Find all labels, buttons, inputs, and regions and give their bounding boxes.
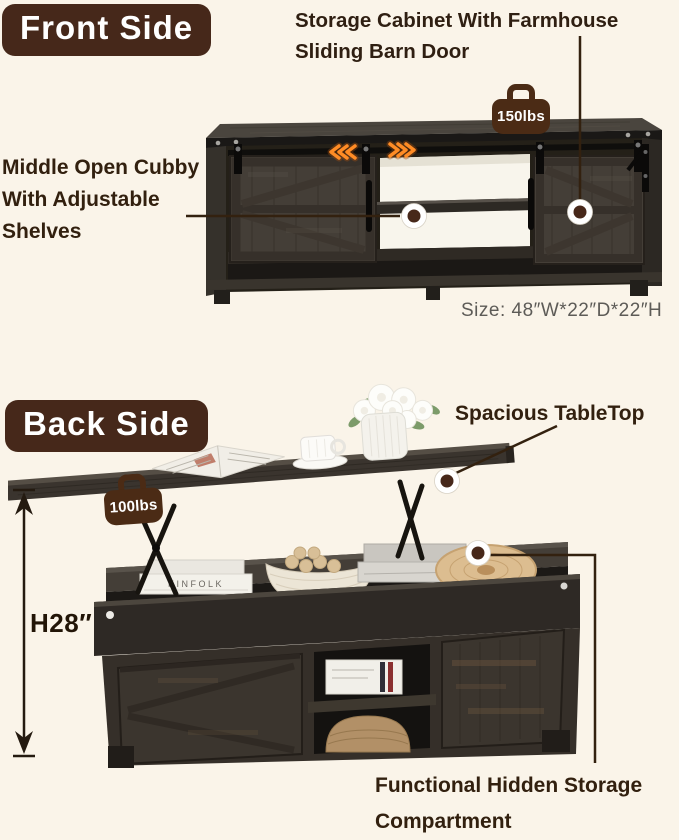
cubby-callout-line3: Shelves <box>2 216 199 248</box>
callout-dot-tabletop <box>435 469 460 494</box>
weight-150-label: 150lbs <box>497 108 545 125</box>
back-side-badge: Back Side <box>5 400 208 452</box>
front-side-badge-label: Front Side <box>20 9 193 46</box>
callout-line-tabletop <box>456 426 557 473</box>
cubby-callout-text: Middle Open Cubby With Adjustable Shelve… <box>2 152 199 248</box>
callout-line-storage <box>489 555 595 763</box>
front-side-badge: Front Side <box>2 4 211 56</box>
callout-dot-storage <box>466 541 491 566</box>
barn-door-callout-line2: Sliding Barn Door <box>295 36 618 67</box>
storage-callout-text: Functional Hidden Storage Compartment <box>375 768 642 840</box>
barn-door-callout-text: Storage Cabinet With Farmhouse Sliding B… <box>295 5 618 67</box>
height-label: H28″ <box>30 608 92 639</box>
weight-100-label: 100lbs <box>109 496 158 516</box>
callout-dot-cubby <box>402 204 427 229</box>
callout-dot-barn-door <box>568 200 593 225</box>
cubby-callout-line1: Middle Open Cubby <box>2 152 199 184</box>
tabletop-callout-text: Spacious TableTop <box>455 398 644 430</box>
size-label: Size: 48″W*22″D*22″H <box>461 300 662 322</box>
cubby-callout-line2: With Adjustable <box>2 184 199 216</box>
barn-door-callout-line1: Storage Cabinet With Farmhouse <box>295 5 618 36</box>
storage-callout-line1: Functional Hidden Storage <box>375 768 642 804</box>
weight-capacity-badge-100: 100lbs <box>102 472 163 526</box>
product-infographic: { "meta": { "background_color": "#FAF4E9… <box>0 0 679 835</box>
back-side-badge-label: Back Side <box>23 405 190 442</box>
weight-capacity-badge-150: 150lbs <box>492 84 550 134</box>
